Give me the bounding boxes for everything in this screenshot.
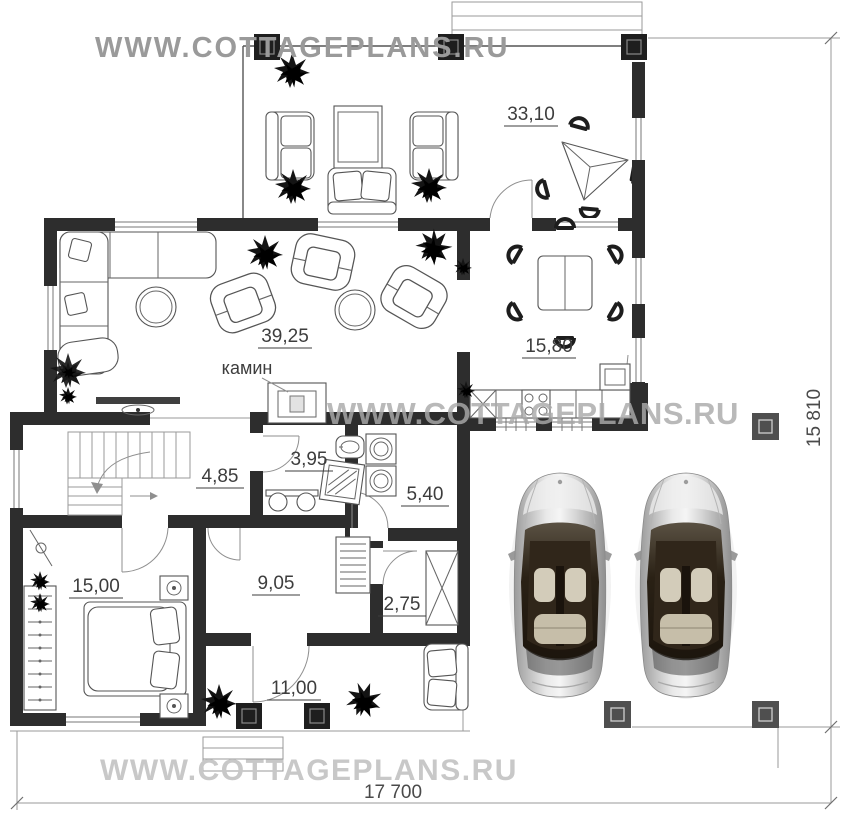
porch-column (304, 703, 330, 729)
corridor-wardrobe (336, 537, 370, 593)
watermark-bottom: WWW.COTTAGEPLANS.RU (100, 754, 518, 787)
room-area-label-bathroom: 3,95 (291, 449, 328, 470)
fridge-icon (600, 364, 630, 390)
car-top-view (508, 473, 612, 699)
fireplace (262, 378, 326, 423)
room-area-label-bedroom: 15,00 (72, 576, 120, 597)
room-area-label-hall: 4,85 (202, 466, 239, 487)
room-area-label-corridor: 9,05 (258, 573, 295, 594)
room-area-label-kitchen-dining: 15,80 (525, 336, 573, 357)
closet-wardrobe (426, 551, 458, 625)
terrace-dining-set (533, 114, 646, 221)
room-area-label-closet: 2,75 (384, 594, 421, 615)
watermark-middle: WWW.COTTAGEPLANS.RU (327, 396, 739, 431)
room-area-label-laundry: 5,40 (407, 484, 444, 505)
room-area-label-terrace-top: 33,10 (507, 104, 555, 125)
carport-column (752, 701, 779, 728)
porch-column (621, 34, 647, 60)
porch-column (236, 703, 262, 729)
carport-column (752, 413, 779, 440)
watermark-top: WWW.COTTAGEPLANS.RU (95, 32, 509, 64)
bedroom-furniture (24, 530, 188, 718)
laundry-machines (366, 434, 396, 496)
fireplace-label: камин (222, 358, 273, 378)
floor-plan-canvas: 17 700 15 810 33,10 39,25 15,80 4,85 3,9… (0, 0, 848, 820)
plant-icon (247, 235, 284, 272)
car-top-view (634, 473, 738, 699)
dining-set (502, 217, 627, 349)
tv-icon (96, 397, 180, 404)
room-area-label-living: 39,25 (261, 326, 309, 347)
staircase (68, 432, 190, 515)
dimension-height-label: 15 810 (804, 389, 825, 447)
bathroom-fixtures (266, 436, 365, 511)
room-area-label-terrace-bottom: 11,00 (271, 678, 317, 699)
floor-plan-page: 17 700 15 810 33,10 39,25 15,80 4,85 3,9… (0, 0, 848, 820)
carport-column (604, 701, 631, 728)
